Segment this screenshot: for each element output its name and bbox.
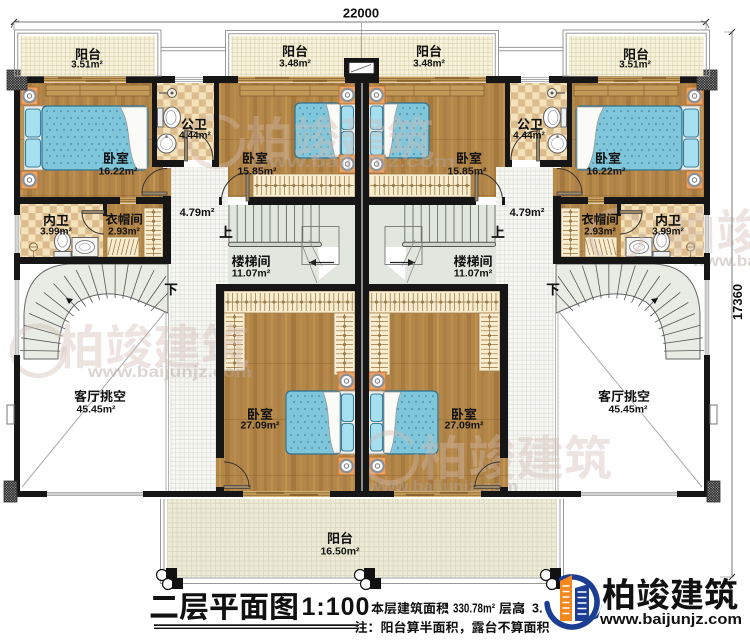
svg-text:www.baijunjz.com: www.baijunjz.com (599, 612, 742, 628)
svg-text:330.78m²: 330.78m² (453, 601, 495, 615)
svg-text:17360: 17360 (730, 284, 745, 320)
svg-text:16.50m²: 16.50m² (320, 546, 360, 558)
svg-text:16.22m²: 16.22m² (98, 166, 138, 178)
svg-text:1:100: 1:100 (302, 593, 371, 621)
svg-text:4.79m²: 4.79m² (510, 207, 545, 219)
svg-text:3.48m²: 3.48m² (413, 59, 445, 70)
svg-text:45.45m²: 45.45m² (608, 404, 648, 416)
svg-text:3.99m²: 3.99m² (40, 227, 72, 238)
svg-text:27.09m²: 27.09m² (444, 420, 484, 432)
svg-text:www.baijunjz.com: www.baijunjz.com (87, 364, 252, 381)
svg-text:4.79m²: 4.79m² (180, 207, 215, 219)
svg-text:27.09m²: 27.09m² (240, 420, 280, 432)
svg-text:11.07m²: 11.07m² (232, 268, 271, 280)
svg-text:4.44m²: 4.44m² (179, 131, 211, 142)
svg-text:45.45m²: 45.45m² (76, 404, 116, 416)
svg-text:16.22m²: 16.22m² (586, 166, 626, 178)
svg-text:3.48m²: 3.48m² (279, 59, 311, 70)
svg-text:3.51m²: 3.51m² (619, 60, 651, 71)
svg-text:2.93m²: 2.93m² (584, 227, 616, 238)
svg-text:3.99m²: 3.99m² (652, 227, 684, 238)
svg-text:4.44m²: 4.44m² (513, 131, 545, 142)
svg-text:15.85m²: 15.85m² (237, 166, 277, 178)
svg-text:11.07m²: 11.07m² (454, 268, 493, 280)
svg-text:22000: 22000 (343, 6, 379, 21)
svg-text:3.: 3. (532, 601, 542, 615)
svg-text:15.85m²: 15.85m² (447, 166, 487, 178)
svg-text:www.baijunjz.com: www.baijunjz.com (249, 152, 455, 171)
svg-text:2.93m²: 2.93m² (108, 227, 140, 238)
svg-text:3.51m²: 3.51m² (71, 60, 103, 71)
